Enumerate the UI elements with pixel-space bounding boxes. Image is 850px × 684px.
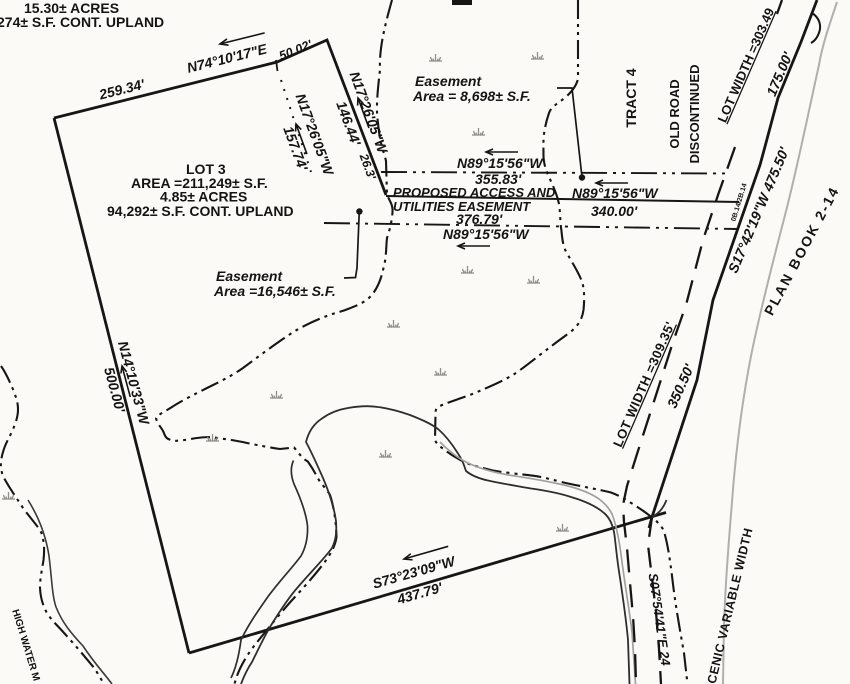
svg-text:S07°54'41"E 24: S07°54'41"E 24 <box>646 572 674 667</box>
svg-text:Easement: Easement <box>415 73 482 89</box>
svg-text:94,292± S.F. CONT. UPLAND: 94,292± S.F. CONT. UPLAND <box>107 203 294 219</box>
svg-text:350.50': 350.50' <box>664 361 698 410</box>
svg-text:DISCONTINUED: DISCONTINUED <box>687 65 702 164</box>
svg-text:259.34': 259.34' <box>96 76 146 103</box>
svg-text:N89°15'56"W: N89°15'56"W <box>572 185 659 201</box>
svg-text:LOT WIDTH =303.49: LOT WIDTH =303.49 <box>714 6 777 125</box>
svg-text:N89°15'56"W: N89°15'56"W <box>443 226 530 242</box>
svg-text:OLD ROAD: OLD ROAD <box>667 79 682 148</box>
svg-text:N89°15'56"W: N89°15'56"W <box>457 155 544 171</box>
svg-text:376.79': 376.79' <box>456 211 503 227</box>
svg-text:TRACT 4: TRACT 4 <box>623 68 639 127</box>
svg-text:Easement: Easement <box>216 268 283 284</box>
svg-text:175.00': 175.00' <box>763 49 796 98</box>
svg-text:274± S.F. CONT. UPLAND: 274± S.F. CONT. UPLAND <box>0 14 164 30</box>
svg-text:PROPOSED ACCESS AND: PROPOSED ACCESS AND <box>393 185 556 200</box>
svg-text:50.02': 50.02' <box>277 37 315 63</box>
svg-text:HIGH WATER M: HIGH WATER M <box>9 608 41 682</box>
svg-text:PLAN BOOK 2-14: PLAN BOOK 2-14 <box>761 183 843 318</box>
svg-text:355.83': 355.83' <box>475 171 522 187</box>
svg-text:Area = 8,698± S.F.: Area = 8,698± S.F. <box>412 88 531 104</box>
svg-text:26.3': 26.3' <box>356 151 379 182</box>
svg-text:340.00': 340.00' <box>591 203 638 219</box>
svg-text:Area =16,546± S.F.: Area =16,546± S.F. <box>213 283 336 299</box>
